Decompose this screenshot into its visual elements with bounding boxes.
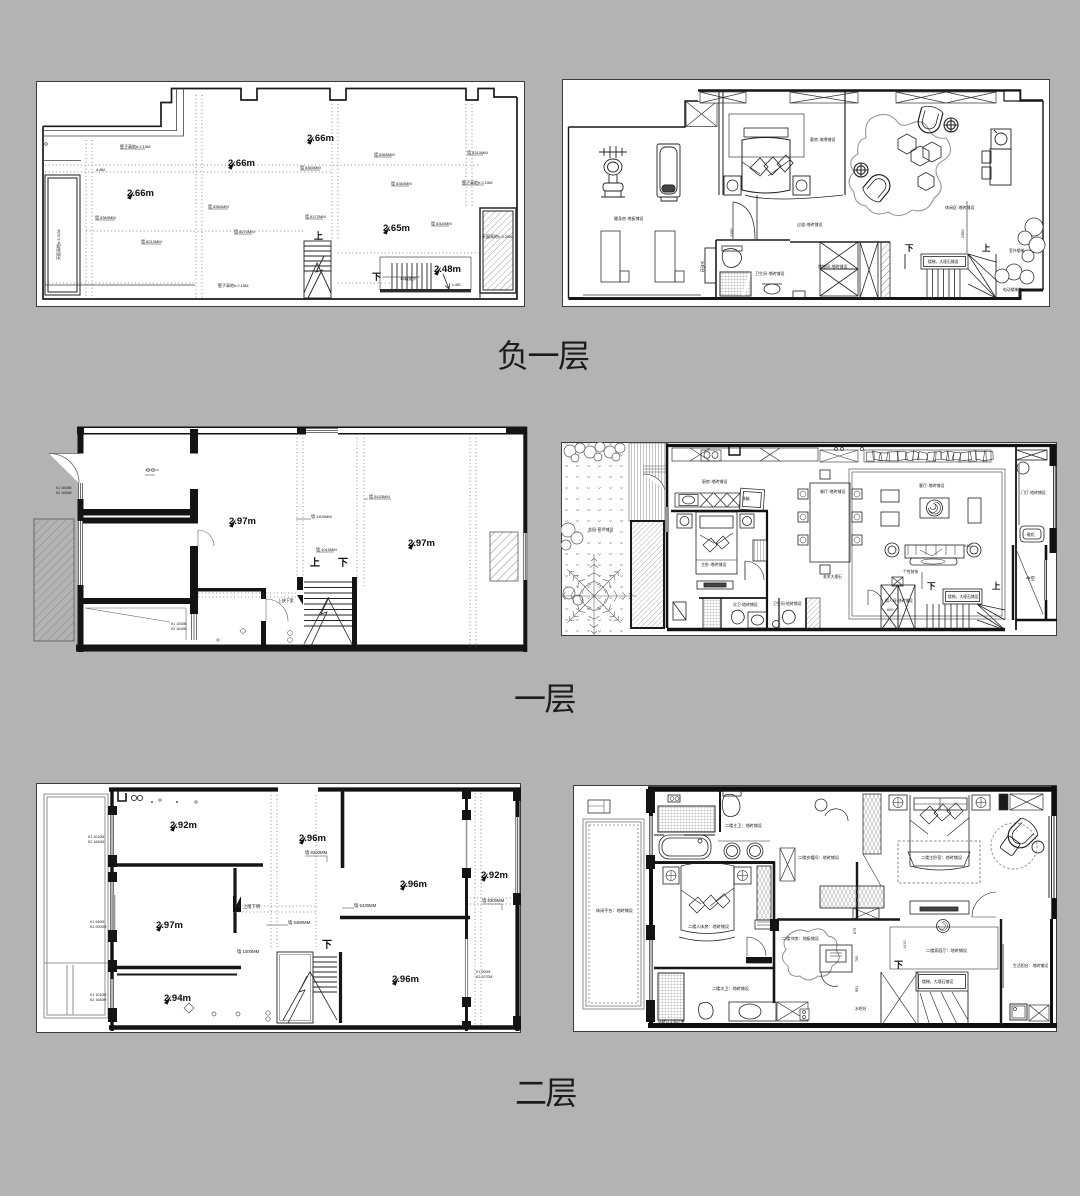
svg-text:水吧台: 水吧台 bbox=[700, 261, 705, 273]
svg-text:K2 1640M: K2 1640M bbox=[88, 840, 104, 844]
svg-text:储物间·地砖铺设: 储物间·地砖铺设 bbox=[818, 263, 847, 269]
svg-text:4.8M: 4.8M bbox=[96, 167, 105, 172]
svg-text:K2 1640M: K2 1640M bbox=[171, 627, 187, 631]
svg-text:679: 679 bbox=[853, 928, 857, 934]
svg-text:楼梯，大理石铺设: 楼梯，大理石铺设 bbox=[948, 594, 979, 599]
svg-text:K1 1010M: K1 1010M bbox=[88, 835, 104, 839]
svg-text:下: 下 bbox=[905, 243, 914, 253]
svg-text:墙 5430MM: 墙 5430MM bbox=[354, 902, 377, 909]
svg-text:墙 1000MM: 墙 1000MM bbox=[237, 948, 260, 955]
svg-text:壁子高地h:2.15M: 壁子高地h:2.15M bbox=[218, 282, 248, 288]
svg-text:休闲区·地砖铺设: 休闲区·地砖铺设 bbox=[945, 204, 974, 210]
svg-text:二楼主卧室：地砖铺设: 二楼主卧室：地砖铺设 bbox=[921, 854, 962, 860]
svg-text:客厅·地砖铺设: 客厅·地砖铺设 bbox=[919, 482, 944, 488]
svg-text:冰箱: 冰箱 bbox=[742, 496, 750, 501]
svg-text:下: 下 bbox=[322, 939, 332, 951]
svg-text:地暖分水器位置: 地暖分水器位置 bbox=[658, 1020, 685, 1025]
svg-text:K2 2000M: K2 2000M bbox=[90, 925, 106, 929]
svg-text:楼梯，大理石铺设: 楼梯，大理石铺设 bbox=[928, 259, 959, 264]
svg-text:墙 8360MM: 墙 8360MM bbox=[208, 203, 229, 209]
svg-text:墙 8360MM: 墙 8360MM bbox=[95, 214, 116, 220]
svg-text:二楼衣帽间：地砖铺设: 二楼衣帽间：地砖铺设 bbox=[798, 854, 839, 860]
svg-text:上: 上 bbox=[982, 243, 991, 253]
svg-text:二楼人床房：地砖铺设: 二楼人床房：地砖铺设 bbox=[688, 923, 729, 929]
svg-text:主卧·地砖铺设: 主卧·地砖铺设 bbox=[701, 561, 726, 567]
svg-text:2350: 2350 bbox=[961, 230, 965, 238]
svg-text:700: 700 bbox=[855, 956, 859, 962]
svg-text:K1 1540M: K1 1540M bbox=[56, 486, 72, 490]
svg-text:壁子高地h:2.15M: 壁子高地h:2.15M bbox=[462, 179, 492, 185]
svg-text:墙 5433MM: 墙 5433MM bbox=[369, 493, 390, 499]
svg-text:K2 2070M: K2 2070M bbox=[476, 975, 492, 979]
svg-text:墙 5480MM: 墙 5480MM bbox=[288, 919, 311, 926]
svg-text:门厅·地砖铺设: 门厅·地砖铺设 bbox=[1021, 490, 1046, 495]
svg-text:玄关大理石: 玄关大理石 bbox=[823, 574, 842, 579]
svg-text:卫生间·地砖铺设: 卫生间·地砖铺设 bbox=[755, 270, 784, 276]
svg-text:水吧台: 水吧台 bbox=[855, 1006, 867, 1011]
svg-text:墙 8365MM: 墙 8365MM bbox=[374, 151, 395, 157]
svg-text:下: 下 bbox=[338, 557, 348, 569]
svg-text:墙 8172MM: 墙 8172MM bbox=[305, 213, 326, 219]
svg-text:墙 8310MM: 墙 8310MM bbox=[467, 149, 488, 155]
svg-text:天窗高地h:3.31M: 天窗高地h:3.31M bbox=[55, 230, 61, 260]
svg-text:墙 8300MM: 墙 8300MM bbox=[482, 897, 505, 904]
svg-text:个性装饰: 个性装饰 bbox=[903, 569, 918, 574]
svg-text:k.480: k.480 bbox=[452, 283, 461, 287]
svg-text:生活阳台：地砖铺设: 生活阳台：地砖铺设 bbox=[1013, 963, 1048, 968]
svg-text:下: 下 bbox=[927, 581, 936, 591]
svg-text:室外楼梯: 室外楼梯 bbox=[1009, 248, 1024, 253]
svg-text:K2 1600M: K2 1600M bbox=[56, 491, 72, 495]
svg-text:2350: 2350 bbox=[730, 229, 734, 237]
svg-text:600: 600 bbox=[887, 608, 893, 612]
svg-text:墙 8300MM: 墙 8300MM bbox=[305, 849, 328, 856]
svg-text:二楼家庭厅：地砖铺设: 二楼家庭厅：地砖铺设 bbox=[926, 947, 967, 953]
svg-text:K1 600M: K1 600M bbox=[476, 970, 490, 974]
svg-text:1410: 1410 bbox=[964, 544, 972, 548]
svg-text:墙 8300MM: 墙 8300MM bbox=[431, 220, 452, 226]
svg-text:K2 1640M: K2 1640M bbox=[90, 998, 106, 1002]
svg-text:1410: 1410 bbox=[903, 941, 907, 949]
svg-text:二楼主卫：地砖铺设: 二楼主卫：地砖铺设 bbox=[725, 822, 762, 828]
svg-text:楼梯，大理石铺设: 楼梯，大理石铺设 bbox=[922, 979, 953, 984]
svg-text:墙 1400MM: 墙 1400MM bbox=[311, 513, 332, 519]
svg-text:卫生间·地砖铺设: 卫生间·地砖铺设 bbox=[773, 601, 802, 606]
svg-text:过道·地砖铺设: 过道·地砖铺设 bbox=[797, 221, 822, 227]
svg-text:佣人间·地砖铺设: 佣人间·地砖铺设 bbox=[885, 598, 913, 603]
svg-text:鞋柜: 鞋柜 bbox=[1027, 532, 1035, 537]
svg-text:二楼次卫：地砖铺设: 二楼次卫：地砖铺设 bbox=[712, 985, 749, 991]
svg-text:上: 上 bbox=[992, 581, 1001, 591]
svg-text:13级踏步: 13级踏步 bbox=[400, 275, 416, 281]
svg-text:下: 下 bbox=[894, 960, 903, 970]
svg-text:二楼书房：地板铺设: 二楼书房：地板铺设 bbox=[782, 935, 819, 941]
svg-text:厨房·地砖铺设: 厨房·地砖铺设 bbox=[702, 478, 727, 484]
svg-text:上暗下明: 上暗下明 bbox=[243, 903, 260, 910]
svg-text:天窗高地h:3.29M: 天窗高地h:3.29M bbox=[482, 233, 512, 239]
svg-text:上狭下宽: 上狭下宽 bbox=[278, 598, 294, 603]
svg-text:墙 8210MM: 墙 8210MM bbox=[141, 238, 162, 244]
svg-text:花园·草坪铺设: 花园·草坪铺设 bbox=[588, 526, 613, 532]
svg-text:休闲平台：地砖铺设: 休闲平台：地砖铺设 bbox=[596, 907, 633, 913]
svg-text:墙 8360MM: 墙 8360MM bbox=[300, 164, 321, 170]
svg-text:中空: 中空 bbox=[1026, 575, 1035, 582]
svg-text:餐厅·地砖铺设: 餐厅·地砖铺设 bbox=[820, 488, 845, 494]
svg-text:K1 1010M: K1 1010M bbox=[90, 993, 106, 997]
svg-text:客房·海绵铺设: 客房·海绵铺设 bbox=[810, 136, 835, 142]
svg-text:壁子高地h:2.15M: 壁子高地h:2.15M bbox=[120, 143, 150, 149]
svg-text:墙 8270MM: 墙 8270MM bbox=[234, 228, 255, 234]
svg-text:健身房·地板铺设: 健身房·地板铺设 bbox=[614, 215, 643, 221]
svg-text:上: 上 bbox=[314, 230, 323, 241]
svg-text:951: 951 bbox=[855, 986, 859, 992]
svg-text:电动楼梯盖: 电动楼梯盖 bbox=[1003, 287, 1022, 292]
svg-text:下: 下 bbox=[372, 272, 381, 282]
svg-text:墙 8350MM: 墙 8350MM bbox=[391, 180, 412, 186]
svg-text:K1 940M: K1 940M bbox=[90, 920, 104, 924]
svg-text:次卫·地砖铺设: 次卫·地砖铺设 bbox=[733, 602, 758, 607]
svg-text:上: 上 bbox=[310, 556, 320, 569]
svg-text:墙 1010MM: 墙 1010MM bbox=[316, 546, 337, 552]
svg-text:K1 1040M: K1 1040M bbox=[171, 622, 187, 626]
